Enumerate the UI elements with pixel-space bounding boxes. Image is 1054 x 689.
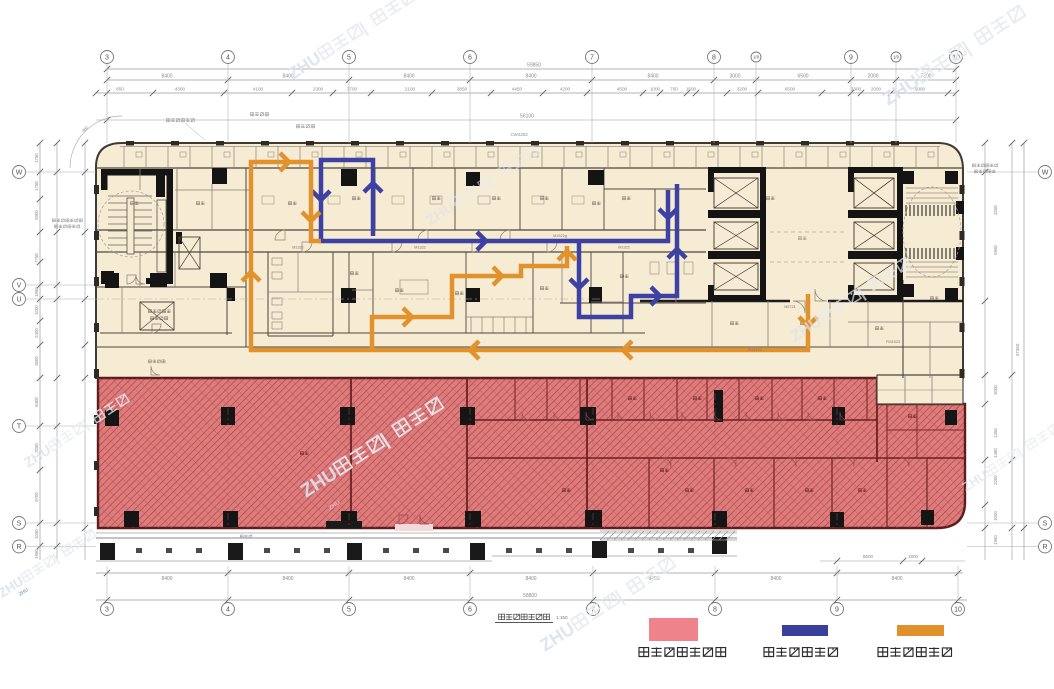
svg-text:2300: 2300 xyxy=(313,87,324,92)
svg-text:9: 9 xyxy=(849,55,853,62)
svg-text:6500: 6500 xyxy=(797,74,808,80)
svg-text:3000: 3000 xyxy=(729,74,740,80)
svg-text:S: S xyxy=(1043,521,1048,528)
svg-text:M1322: M1322 xyxy=(292,246,304,250)
svg-text:6600: 6600 xyxy=(863,554,874,559)
svg-text:5960: 5960 xyxy=(993,245,998,255)
svg-text:M1522g: M1522g xyxy=(553,234,567,238)
svg-text:4100: 4100 xyxy=(253,87,264,92)
svg-text:5: 5 xyxy=(347,55,351,62)
svg-text:3: 3 xyxy=(105,55,109,62)
svg-text:1500: 1500 xyxy=(686,87,697,92)
svg-text:9700: 9700 xyxy=(34,492,39,502)
svg-text:8400: 8400 xyxy=(525,74,536,80)
svg-text:6: 6 xyxy=(468,55,472,62)
svg-text:4: 4 xyxy=(226,607,230,614)
svg-text:59850: 59850 xyxy=(527,63,541,69)
svg-text:8: 8 xyxy=(713,607,717,614)
svg-text:2400: 2400 xyxy=(34,328,39,338)
svg-text:1750: 1750 xyxy=(34,181,39,191)
svg-text:700: 700 xyxy=(670,87,678,92)
svg-text:58800: 58800 xyxy=(523,593,537,599)
svg-text:FM1523: FM1523 xyxy=(886,340,900,344)
svg-text:V: V xyxy=(17,283,22,290)
svg-text:S: S xyxy=(17,521,22,528)
svg-text:3200: 3200 xyxy=(737,87,748,92)
svg-text:R: R xyxy=(1042,544,1047,551)
svg-text:1000: 1000 xyxy=(993,511,998,521)
svg-text:8400: 8400 xyxy=(403,74,414,80)
svg-text:1000: 1000 xyxy=(34,305,39,315)
svg-text:4300: 4300 xyxy=(175,87,186,92)
svg-text:4450: 4450 xyxy=(512,87,523,92)
svg-text:R: R xyxy=(16,544,21,551)
svg-text:3850: 3850 xyxy=(457,87,468,92)
svg-text:4500: 4500 xyxy=(617,87,628,92)
svg-text:8400: 8400 xyxy=(403,576,414,582)
svg-text:8400: 8400 xyxy=(161,576,172,582)
svg-text:M1322: M1322 xyxy=(618,246,630,250)
svg-text:U: U xyxy=(16,297,21,304)
svg-text:8400: 8400 xyxy=(647,74,658,80)
svg-text:37360: 37360 xyxy=(1015,343,1020,356)
svg-text:3600: 3600 xyxy=(34,356,39,366)
svg-text:3700: 3700 xyxy=(347,87,358,92)
svg-text:8: 8 xyxy=(712,55,716,62)
svg-text:4: 4 xyxy=(226,55,230,62)
svg-text:3250: 3250 xyxy=(993,205,998,215)
svg-text:T: T xyxy=(17,424,22,431)
svg-text:1850: 1850 xyxy=(34,287,39,297)
svg-text:5900: 5900 xyxy=(34,210,39,220)
svg-text:8400: 8400 xyxy=(282,576,293,582)
svg-text:7750: 7750 xyxy=(34,253,39,263)
svg-text:3: 3 xyxy=(105,607,109,614)
svg-text:1/9: 1/9 xyxy=(893,55,899,60)
svg-text:2000: 2000 xyxy=(867,74,878,80)
svg-text:1800: 1800 xyxy=(908,554,919,559)
svg-text:1750: 1750 xyxy=(34,153,39,163)
svg-text:9: 9 xyxy=(835,607,839,614)
svg-text:1950: 1950 xyxy=(34,549,39,559)
svg-text:2000: 2000 xyxy=(871,87,882,92)
svg-text:M2721: M2721 xyxy=(784,305,796,309)
svg-text:850: 850 xyxy=(116,87,124,92)
svg-text:W: W xyxy=(1042,170,1049,177)
svg-text:8400: 8400 xyxy=(770,576,781,582)
svg-text:7: 7 xyxy=(590,55,594,62)
svg-text:1/8: 1/8 xyxy=(753,55,759,60)
svg-text:M1322: M1322 xyxy=(414,246,426,250)
svg-text:1450: 1450 xyxy=(993,428,998,438)
svg-text:3300: 3300 xyxy=(851,87,862,92)
svg-text:6: 6 xyxy=(468,607,472,614)
svg-text:10: 10 xyxy=(954,607,962,614)
svg-text:3200: 3200 xyxy=(993,475,998,485)
svg-text:1000: 1000 xyxy=(650,87,661,92)
svg-text:3000: 3000 xyxy=(993,385,998,395)
svg-text:W: W xyxy=(16,170,23,177)
svg-text:8400: 8400 xyxy=(525,576,536,582)
svg-text:8400: 8400 xyxy=(891,576,902,582)
svg-text:8400: 8400 xyxy=(161,74,172,80)
svg-text:6500: 6500 xyxy=(785,87,796,92)
svg-text:1050: 1050 xyxy=(34,529,39,539)
svg-text:8400: 8400 xyxy=(34,397,39,407)
svg-text:4200: 4200 xyxy=(560,87,571,92)
svg-text:FM2122: FM2122 xyxy=(748,348,762,352)
svg-text:1450: 1450 xyxy=(993,448,998,458)
svg-text:5: 5 xyxy=(347,607,351,614)
svg-text:56100: 56100 xyxy=(520,114,534,120)
svg-text:1950: 1950 xyxy=(993,535,998,545)
svg-text:CW4253: CW4253 xyxy=(510,132,528,137)
svg-text:2100: 2100 xyxy=(405,87,416,92)
